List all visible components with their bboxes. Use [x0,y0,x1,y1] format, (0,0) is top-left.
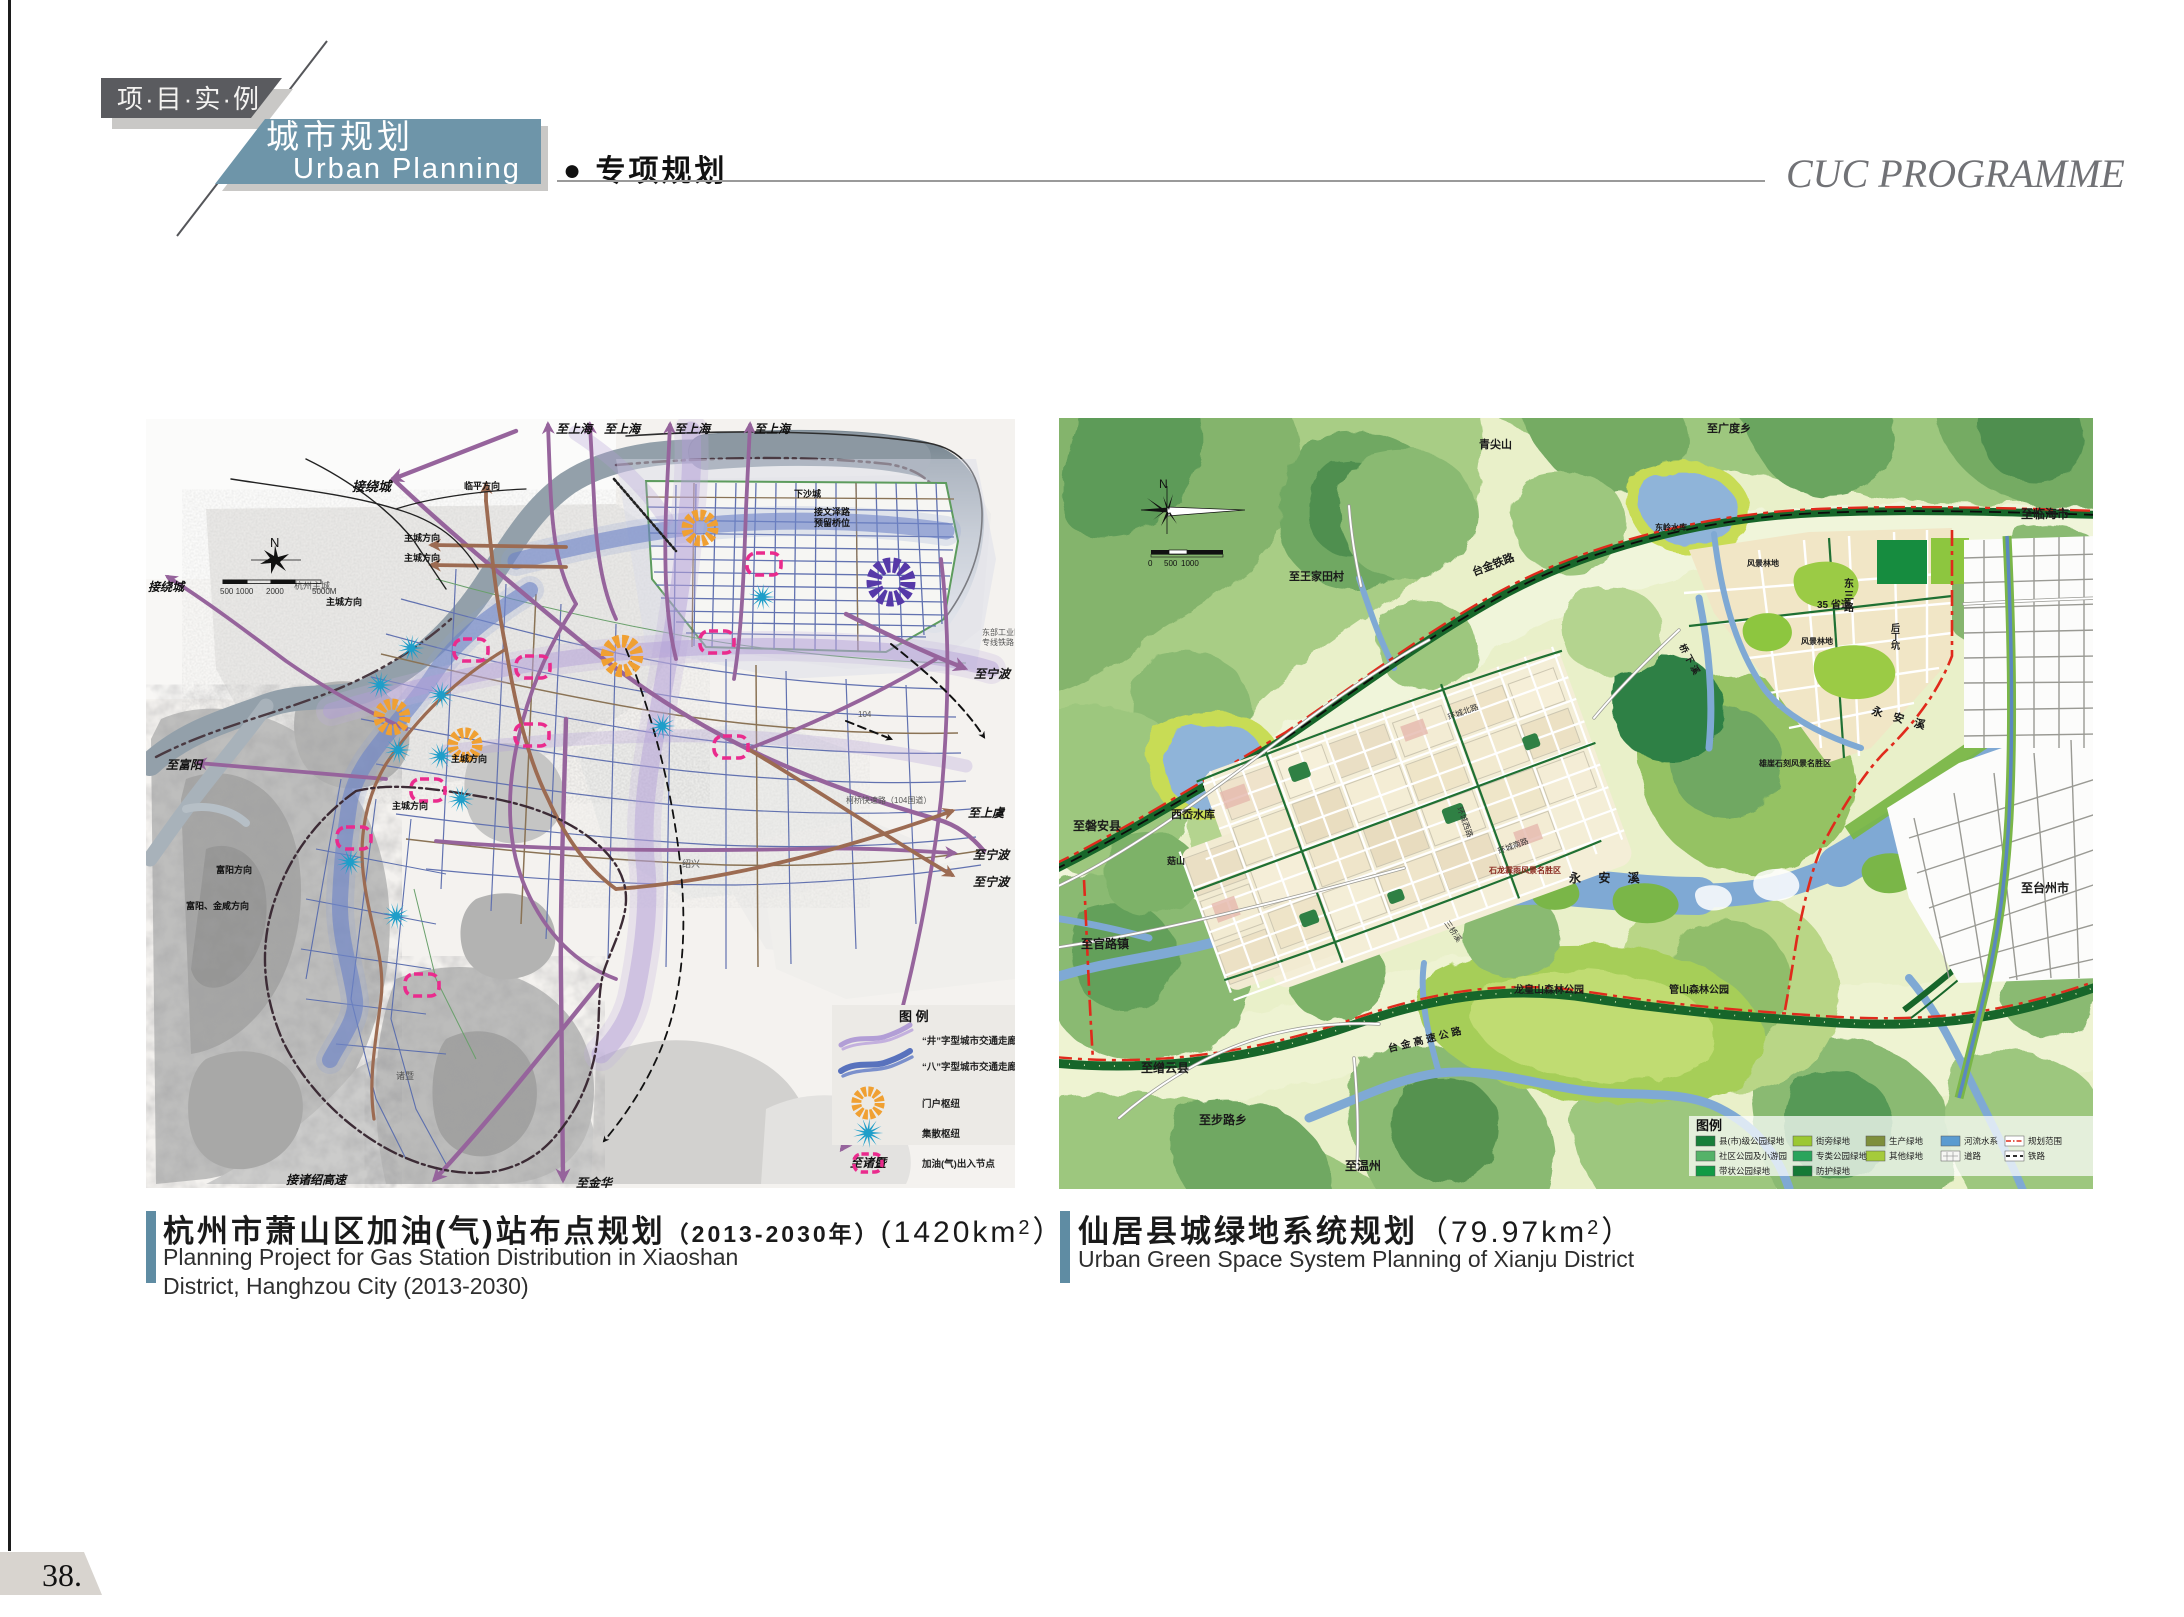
svg-text:1000: 1000 [1181,559,1199,568]
svg-text:主城方向: 主城方向 [392,800,428,811]
svg-text:石龙霖雨风景名胜区: 石龙霖雨风景名胜区 [1488,865,1561,875]
svg-text:东岭水库: 东岭水库 [1655,522,1687,532]
svg-text:图例: 图例 [1696,1118,1722,1133]
svg-text:门户枢纽: 门户枢纽 [922,1098,961,1110]
svg-text:下沙城: 下沙城 [794,488,821,499]
svg-text:铁路: 铁路 [2028,1151,2046,1161]
svg-text:“井”字型城市交通走廊: “井”字型城市交通走廊 [922,1035,1015,1047]
svg-text:柯桥快速路（104国道）: 柯桥快速路（104国道） [846,795,931,805]
svg-text:至上虞: 至上虞 [968,806,1006,820]
svg-text:规划范围: 规划范围 [2028,1136,2062,1146]
svg-text:至缯云县: 至缯云县 [1141,1060,1189,1075]
svg-text:500 1000: 500 1000 [220,587,254,596]
svg-text:Urban Planning: Urban Planning [293,153,521,185]
svg-text:专类公园绿地: 专类公园绿地 [1816,1151,1868,1161]
svg-text:至宁波: 至宁波 [974,667,1012,681]
svg-text:带状公园绿地: 带状公园绿地 [1719,1166,1771,1176]
svg-text:N: N [270,535,279,550]
svg-text:绍兴: 绍兴 [682,858,700,869]
svg-text:后丁坑: 后丁坑 [1890,622,1900,651]
svg-text:城市规划: 城市规划 [266,118,414,155]
svg-text:雄崖石刻风景名胜区: 雄崖石刻风景名胜区 [1758,758,1831,768]
svg-text:东部工业区: 东部工业区 [982,627,1015,637]
svg-text:龙皇山森林公园: 龙皇山森林公园 [1513,983,1584,996]
svg-text:至金华: 至金华 [576,1176,614,1188]
svg-text:加油(气)出入节点: 加油(气)出入节点 [921,1158,995,1170]
svg-text:富阳方向: 富阳方向 [216,864,252,875]
svg-text:“八”字型城市交通走廊: “八”字型城市交通走廊 [922,1061,1015,1073]
svg-text:主城方向: 主城方向 [404,552,440,563]
svg-text:104: 104 [858,710,872,719]
svg-text:预留桥位: 预留桥位 [814,517,850,528]
svg-text:防护绿地: 防护绿地 [1816,1166,1851,1176]
svg-text:青尖山: 青尖山 [1479,437,1512,451]
svg-text:接绕城: 接绕城 [148,580,186,594]
svg-text:菇山: 菇山 [1166,855,1185,866]
svg-text:至临海市: 至临海市 [2021,506,2069,521]
svg-text:道路: 道路 [1964,1151,1982,1161]
svg-text:至广度乡: 至广度乡 [1707,421,1751,435]
svg-text:专线铁路: 专线铁路 [982,637,1014,647]
svg-text:至步路乡: 至步路乡 [1199,1112,1247,1127]
svg-text:社区公园及小游园: 社区公园及小游园 [1719,1151,1787,1161]
svg-text:县(市)级公园绿地: 县(市)级公园绿地 [1719,1136,1785,1146]
svg-text:至王家田村: 至王家田村 [1289,569,1344,583]
svg-text:5000M: 5000M [312,587,337,596]
svg-text:永 安 溪: 永 安 溪 [1568,870,1647,885]
svg-text:500: 500 [1164,559,1178,568]
svg-text:至宁波: 至宁波 [973,848,1011,862]
svg-text:主城方向: 主城方向 [451,753,487,764]
svg-text:0: 0 [1148,559,1153,568]
svg-text:至台州市: 至台州市 [2021,880,2069,895]
svg-text:至官路镇: 至官路镇 [1081,936,1129,951]
svg-text:至上海: 至上海 [556,422,594,436]
svg-text:至上海: 至上海 [604,422,642,436]
svg-text:N: N [1159,477,1168,491]
svg-text:其他绿地: 其他绿地 [1889,1151,1924,1161]
svg-text:主城方向: 主城方向 [326,596,362,607]
svg-text:接诸绍高速: 接诸绍高速 [286,1173,348,1187]
svg-text:生产绿地: 生产绿地 [1889,1136,1924,1146]
svg-text:项·目·实·例: 项·目·实·例 [117,84,261,114]
svg-text:至富阳: 至富阳 [166,758,204,772]
svg-text:管山森林公园: 管山森林公园 [1669,983,1729,996]
svg-text:至上海: 至上海 [674,422,712,436]
svg-text:至上海: 至上海 [754,422,792,436]
svg-text:2000: 2000 [266,587,284,596]
svg-text:诸暨: 诸暨 [396,1071,414,1081]
svg-text:临平方向: 临平方向 [464,480,500,491]
svg-text:东三路: 东三路 [1842,577,1854,614]
svg-text:至磐安县: 至磐安县 [1073,818,1121,833]
svg-text:图 例: 图 例 [899,1009,929,1024]
svg-text:街旁绿地: 街旁绿地 [1816,1136,1851,1146]
svg-text:接文泽路: 接文泽路 [814,506,851,517]
svg-text:38.: 38. [42,1557,82,1593]
svg-text:主城方向: 主城方向 [404,532,440,543]
svg-text:西岙水库: 西岙水库 [1171,807,1215,821]
svg-text:至温州: 至温州 [1345,1159,1381,1173]
svg-text:风景林地: 风景林地 [1801,636,1833,646]
svg-text:集散枢纽: 集散枢纽 [921,1128,961,1140]
svg-text:接绕城: 接绕城 [352,479,393,494]
svg-text:河流水系: 河流水系 [1964,1136,1998,1146]
svg-text:富阳、金咸方向: 富阳、金咸方向 [186,900,249,911]
svg-text:风景林地: 风景林地 [1747,558,1779,568]
svg-text:至宁波: 至宁波 [973,875,1011,889]
